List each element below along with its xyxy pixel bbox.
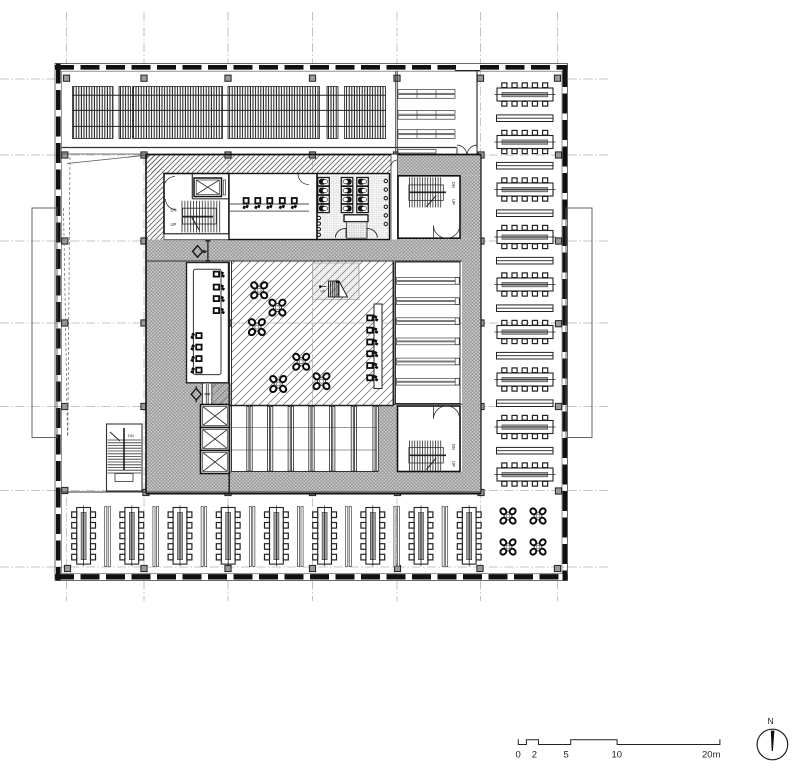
svg-text:10: 10 [612, 750, 623, 761]
svg-text:N: N [768, 716, 774, 726]
svg-text:UP: UP [171, 222, 177, 227]
svg-text:UP: UP [451, 199, 456, 205]
svg-text:DN: DN [171, 208, 177, 213]
svg-text:2: 2 [532, 750, 537, 761]
svg-text:DN: DN [128, 433, 134, 438]
svg-text:DN: DN [451, 182, 456, 188]
svg-text:5: 5 [564, 750, 569, 761]
svg-text:0: 0 [516, 750, 521, 761]
svg-text:20m: 20m [702, 750, 721, 761]
svg-text:DN: DN [451, 444, 456, 450]
svg-text:UP: UP [451, 461, 456, 467]
svg-text:UP: UP [321, 290, 326, 294]
